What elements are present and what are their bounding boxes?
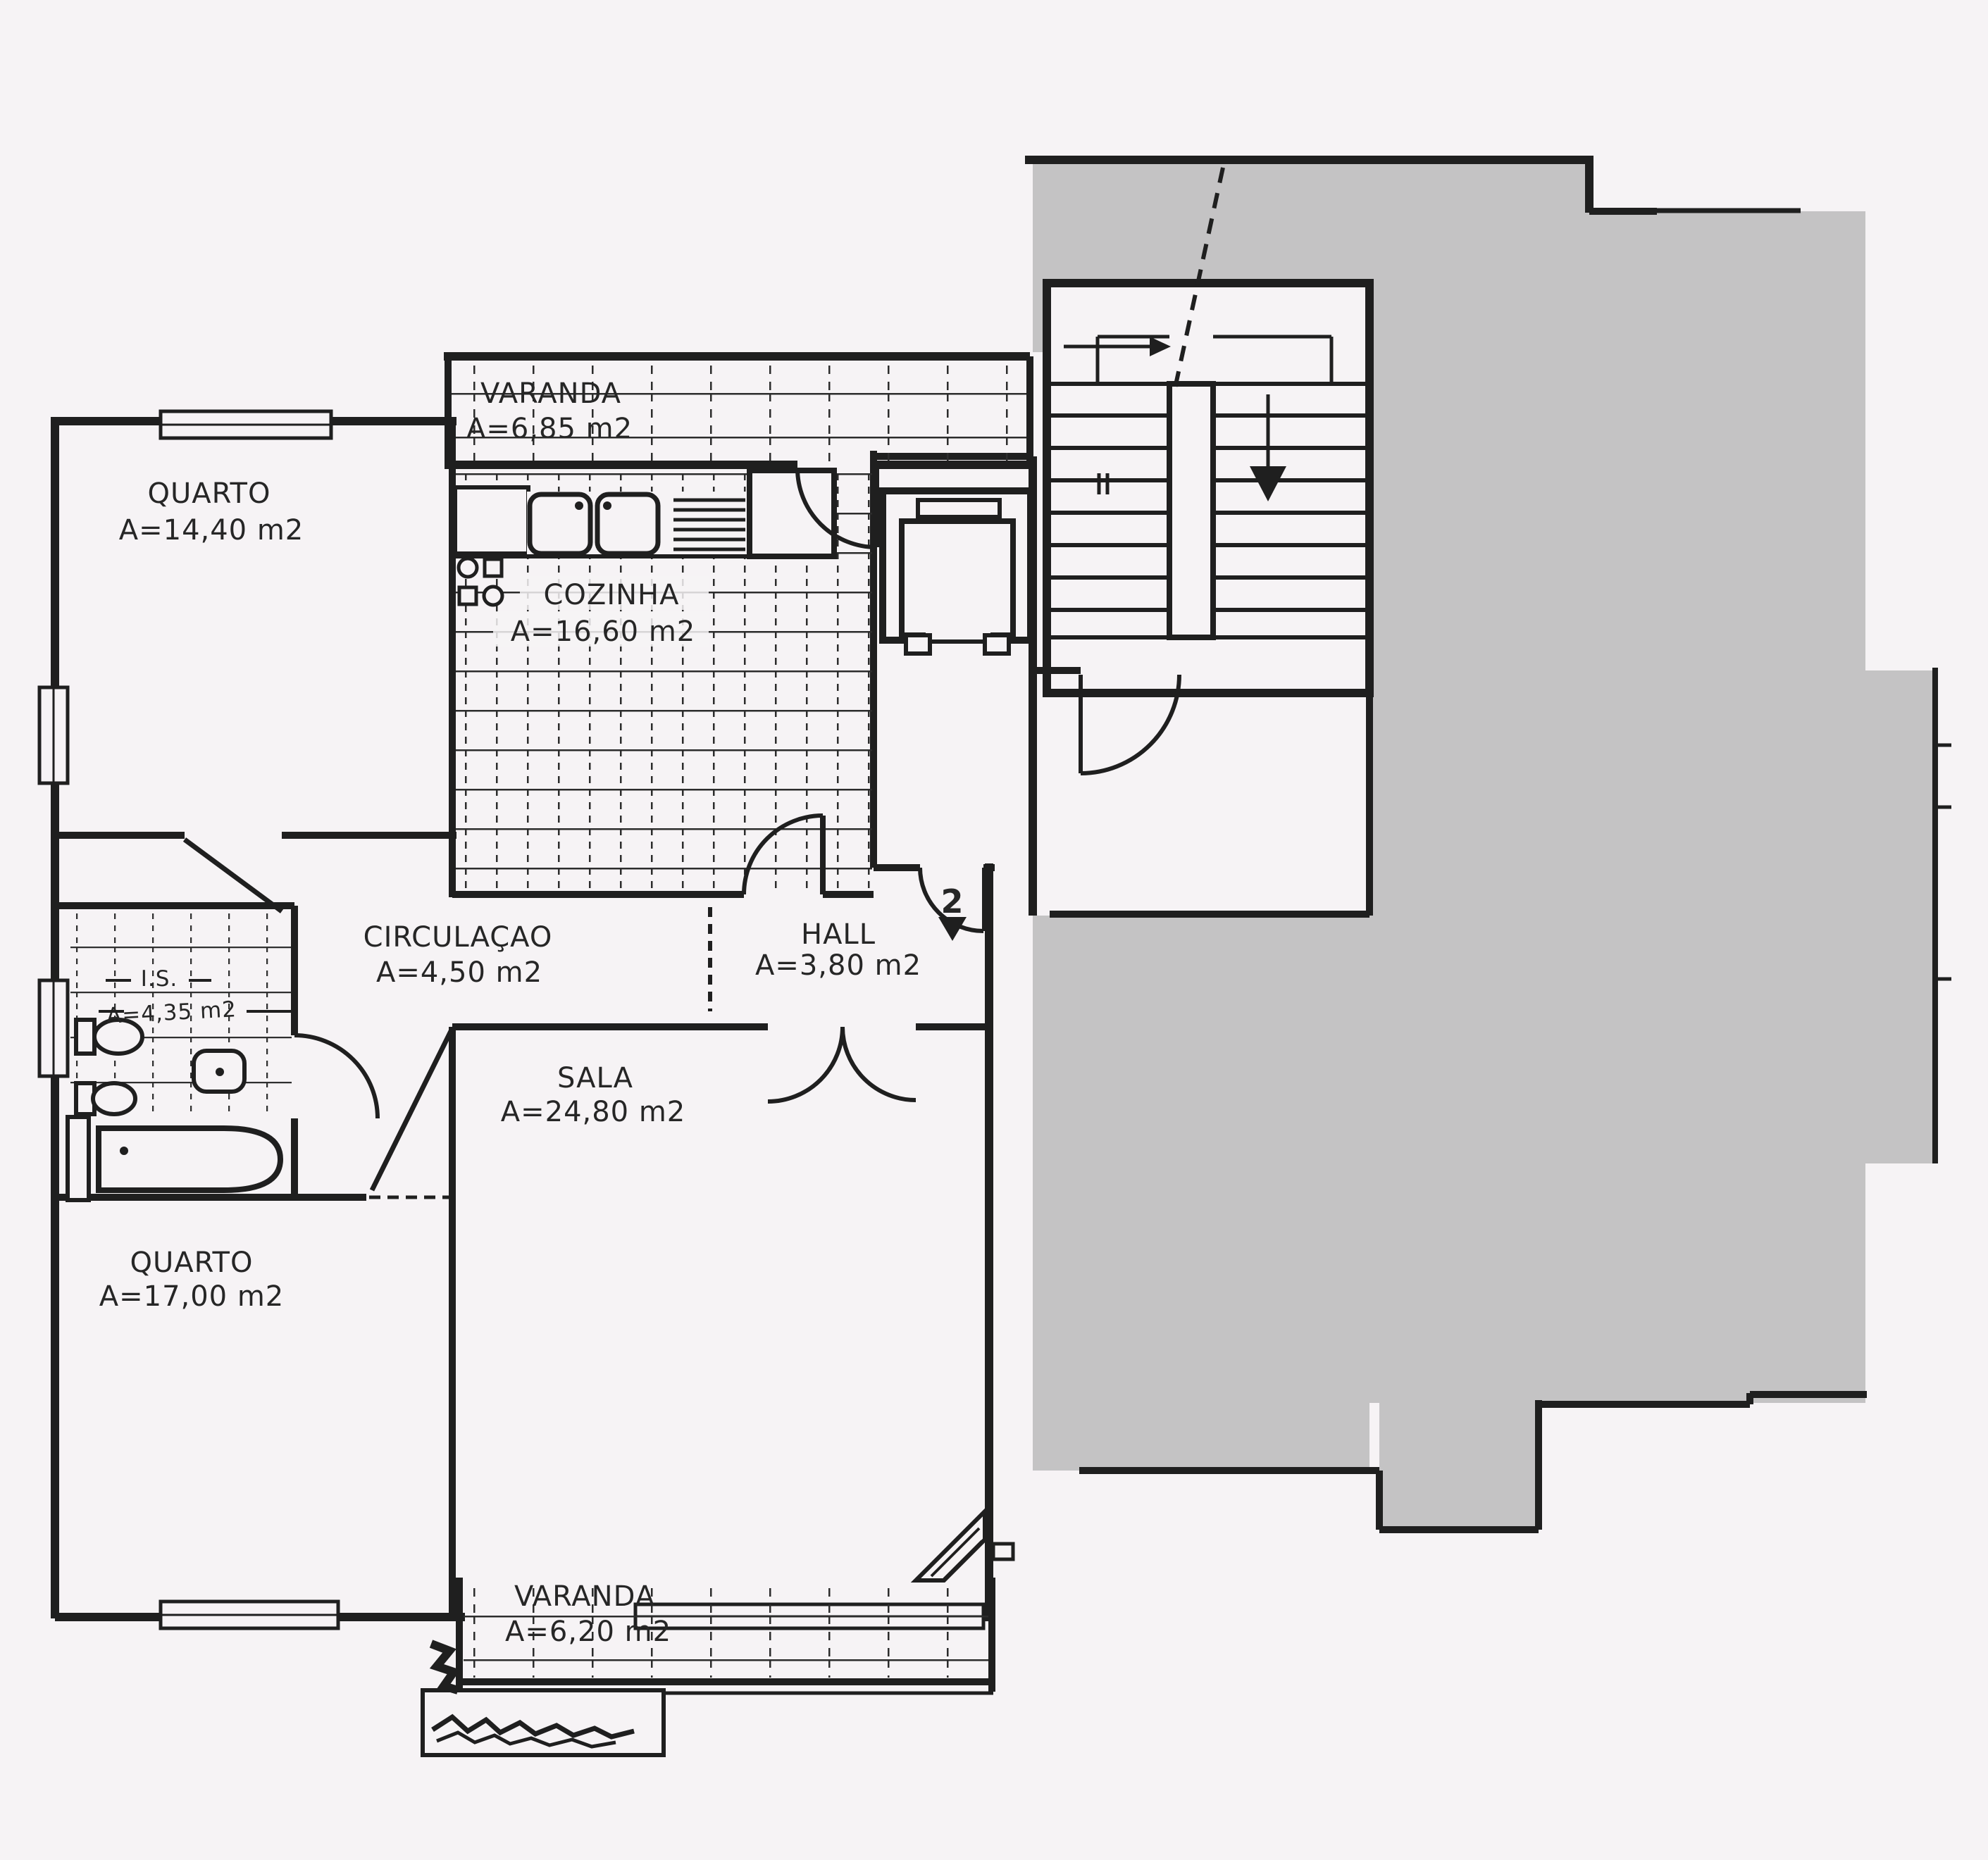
label-sala-area: A=24,80 m2 — [501, 1096, 686, 1128]
label-circulacao-name: CIRCULAÇAO — [364, 921, 553, 954]
window — [161, 1602, 338, 1628]
label-varanda-top-name: VARANDA — [480, 377, 621, 410]
stair-core-wall — [1169, 384, 1213, 637]
label-quarto1-name: QUARTO — [148, 478, 271, 510]
label-varanda-bottom-area: A=6,20 m2 — [505, 1616, 671, 1648]
label-sala-name: SALA — [557, 1062, 633, 1094]
washbasin-icon — [194, 1051, 244, 1092]
window — [39, 687, 68, 783]
window — [161, 411, 331, 438]
scanned-floor-plan-page: QUARTO A=14,40 m2 VARANDA A=6,85 m2 COZI… — [0, 0, 1988, 1860]
label-circulacao-area: A=4,50 m2 — [376, 956, 542, 989]
floor-plan-drawing: QUARTO A=14,40 m2 VARANDA A=6,85 m2 COZI… — [0, 0, 1988, 1860]
elevator-shaft — [883, 491, 1031, 654]
label-unit-number: 2 — [940, 882, 964, 920]
label-hall-name: HALL — [801, 918, 876, 951]
label-cozinha-area: A=16,60 m2 — [511, 616, 696, 648]
label-is-name: I.S. — [141, 966, 178, 992]
bidet-icon — [76, 1083, 135, 1114]
kitchen-drainer-icon — [671, 494, 748, 554]
label-varanda-top-area: A=6,85 m2 — [466, 413, 633, 445]
staircase — [1033, 168, 1369, 916]
label-varanda-bottom-name: VARANDA — [514, 1580, 655, 1613]
label-hall-area: A=3,80 m2 — [755, 949, 921, 982]
window — [39, 980, 68, 1076]
label-quarto1-area: A=14,40 m2 — [119, 514, 304, 547]
label-quarto2-area: A=17,00 m2 — [99, 1280, 285, 1313]
label-cozinha-name: COZINHA — [544, 579, 680, 611]
bathtub-icon — [68, 1117, 280, 1200]
label-quarto2-name: QUARTO — [130, 1247, 254, 1279]
kitchen-appliance — [750, 470, 834, 556]
